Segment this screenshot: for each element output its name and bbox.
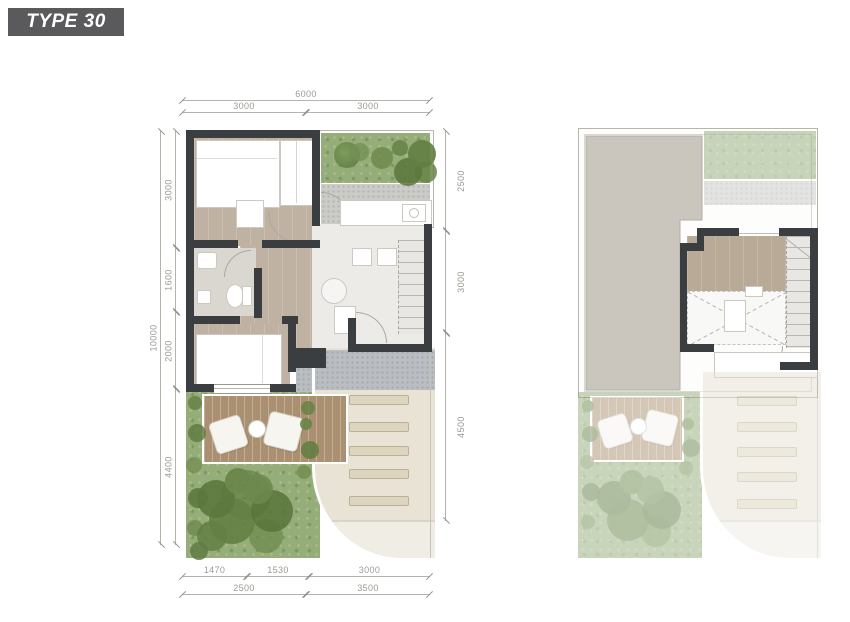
- stool: [352, 248, 372, 266]
- upper-staircase: [786, 236, 811, 348]
- dim-right-seg2: 3000: [445, 231, 446, 333]
- dim-right-seg1: 2500: [445, 131, 446, 231]
- paving-strip: [349, 496, 409, 506]
- ground-level-faded: [578, 348, 818, 560]
- void-furniture: [745, 286, 763, 297]
- wall: [680, 243, 704, 251]
- site-logo[interactable]: RUMAH DAERAH .COM: [640, 552, 850, 620]
- nightstand: [236, 200, 264, 228]
- dim-left-seg4: 4400: [175, 389, 176, 545]
- wall: [680, 251, 687, 348]
- dim-top-total: 6000: [182, 100, 430, 101]
- wall: [312, 130, 320, 226]
- dim-top-seg2: 3000: [306, 112, 430, 113]
- floorplan-sheet: TYPE 30 6000 3000 3000 10000 3000 1600 2…: [0, 0, 850, 622]
- wall: [254, 268, 262, 318]
- door-leaf-line: [739, 233, 779, 234]
- carport-paving: [315, 350, 435, 390]
- entry-paving-faded: [704, 181, 816, 205]
- sink-basin: [409, 208, 419, 218]
- paving-strip: [737, 396, 797, 406]
- dim-left-seg1: 3000: [175, 131, 176, 248]
- paving-strip: [737, 422, 797, 432]
- paving-strip: [349, 422, 409, 432]
- wall: [348, 344, 432, 352]
- wall: [424, 224, 432, 352]
- paving-strip: [737, 499, 797, 509]
- wall: [282, 316, 298, 324]
- bush-cluster: [300, 418, 312, 430]
- bed-pillow-line: [262, 335, 263, 383]
- wall: [186, 384, 214, 392]
- paving-strip: [737, 472, 797, 482]
- bush-cluster: [392, 140, 408, 156]
- lot-boundary-line: [817, 372, 818, 558]
- staircase: [398, 240, 425, 334]
- paving-strip: [349, 446, 409, 456]
- garden-faded: [704, 131, 816, 179]
- dim-bottom-r1-seg3: 3000: [309, 576, 430, 577]
- void-furniture: [724, 300, 746, 332]
- bush-cluster: [582, 400, 594, 412]
- toilet-tank: [242, 286, 252, 306]
- bed-pillow-line: [197, 158, 277, 159]
- wardrobe-line: [296, 141, 297, 203]
- stool: [377, 248, 397, 266]
- sidewalk: [315, 520, 435, 558]
- tree: [334, 142, 360, 168]
- window: [214, 384, 270, 394]
- wall: [262, 240, 320, 248]
- dim-bottom-r2-seg1: 2500: [182, 594, 306, 595]
- type-badge: TYPE 30: [8, 8, 124, 36]
- wall: [270, 384, 296, 392]
- window-line: [214, 388, 270, 389]
- dim-left-seg2: 1600: [175, 248, 176, 312]
- wall: [288, 348, 326, 368]
- wall: [697, 228, 739, 236]
- dim-left-seg3: 2000: [175, 312, 176, 389]
- side-table: [248, 420, 266, 438]
- wall: [779, 228, 818, 236]
- wall: [186, 240, 238, 248]
- bush-cluster: [682, 418, 694, 430]
- wall: [186, 130, 194, 392]
- paving-strip: [737, 447, 797, 457]
- bed: [196, 140, 280, 208]
- type-badge-label: TYPE 30: [26, 11, 106, 33]
- bath-sink: [197, 252, 217, 269]
- dim-left-total: 10000: [160, 131, 161, 545]
- dim-bottom-r1-seg2: 1530: [247, 576, 309, 577]
- driveway-faded: [700, 372, 821, 558]
- bath-shelf: [197, 290, 211, 304]
- bush-cluster: [225, 468, 251, 494]
- paving-strip: [349, 469, 409, 479]
- dining-table: [321, 278, 347, 304]
- wall: [186, 130, 320, 138]
- bed: [196, 334, 282, 386]
- side-table: [630, 418, 647, 435]
- paving-strip: [349, 395, 409, 405]
- dim-top-seg1: 3000: [182, 112, 306, 113]
- wall: [186, 316, 240, 324]
- wardrobe: [280, 140, 314, 206]
- dim-bottom-r2-seg2: 3500: [306, 594, 430, 595]
- bush-cluster: [188, 396, 202, 410]
- dim-bottom-r1-seg1: 1470: [182, 576, 247, 577]
- dim-right-seg3: 4500: [445, 333, 446, 521]
- bush-cluster: [620, 470, 644, 494]
